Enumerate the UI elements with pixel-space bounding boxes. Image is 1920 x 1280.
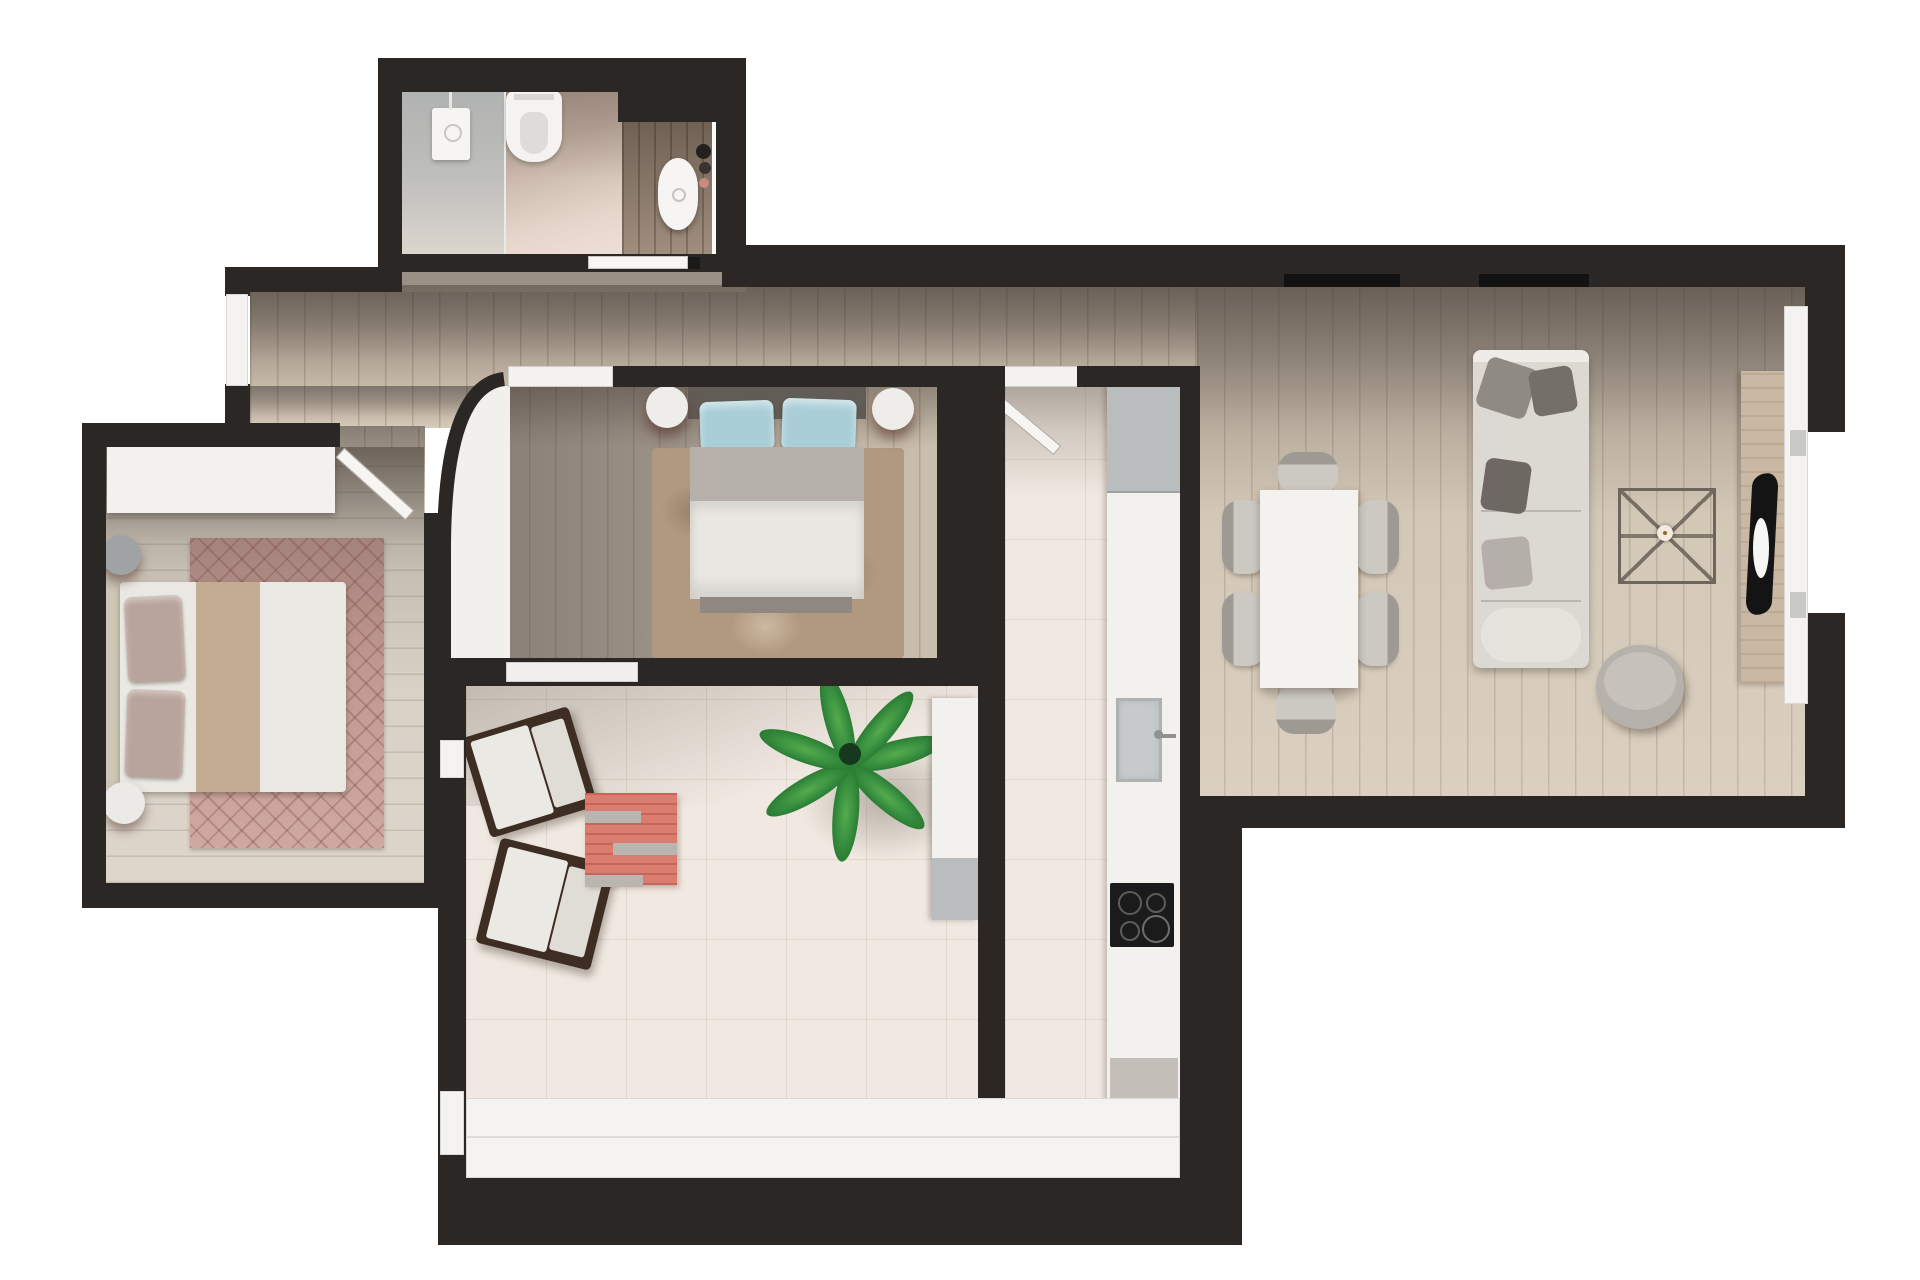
burner-icon [1146, 893, 1166, 913]
wall [937, 366, 1005, 662]
wall [978, 662, 1005, 1103]
window-sill-icon [1790, 592, 1806, 618]
sofa [1473, 350, 1589, 668]
window-lintel [1284, 274, 1400, 287]
wall [1805, 613, 1845, 828]
window-sill-icon [1790, 430, 1806, 456]
rug-stripe [585, 875, 643, 887]
curved-wall [438, 366, 510, 662]
bed1-runner-blanket [196, 582, 260, 792]
bedroom2-door-opening [508, 366, 613, 387]
nightstand [103, 782, 145, 824]
plant-pot-icon [839, 743, 861, 765]
burner-icon [1142, 915, 1170, 943]
wall [1805, 260, 1845, 432]
wall-living-bottom [1197, 796, 1845, 828]
fridge-top [1107, 387, 1180, 493]
bed2 [688, 383, 866, 613]
terrace-sideboard-shelf [932, 858, 978, 920]
rug-stripe [585, 811, 641, 823]
pouf-top [1604, 652, 1676, 710]
wall [82, 883, 440, 908]
bath-accessory-icon [699, 178, 709, 188]
sofa-pillow [1480, 457, 1533, 515]
bed2-foot-bench [700, 597, 852, 613]
bed1-pillow [124, 689, 185, 779]
window [226, 294, 248, 386]
window-lintel [1479, 274, 1589, 287]
sofa-seat-line [1481, 600, 1581, 602]
rug-stripe [613, 843, 677, 855]
potted-palm [765, 685, 935, 845]
bed2-blue-pillow [699, 400, 775, 453]
bed2-blanket [690, 447, 864, 507]
cooktop [1110, 883, 1174, 947]
dining-table [1260, 490, 1358, 688]
hallway-wood-under-bathroom [402, 270, 746, 292]
window-mullion-icon [466, 1136, 1180, 1138]
faucet-icon [1154, 730, 1163, 739]
nightstand [872, 388, 914, 430]
shower-drain-icon [444, 124, 462, 142]
bathroom-sliding-door [588, 256, 688, 269]
sofa-pillow [1481, 536, 1534, 591]
bed1-pillow [124, 595, 186, 684]
wall [225, 267, 250, 296]
panoramic-window [466, 1098, 1180, 1178]
bedroom2-terrace-door [506, 662, 638, 682]
burner-icon [1118, 891, 1142, 915]
burner-icon [1120, 921, 1140, 941]
wall-bottom [438, 1176, 1242, 1245]
window-wall-strip [1784, 306, 1808, 704]
coral-rug [585, 793, 677, 885]
nightstand [101, 535, 141, 575]
sink-drain-icon [672, 188, 686, 202]
candle-wick-icon [1663, 531, 1667, 535]
bath-accessory-icon [696, 144, 711, 159]
dining-chair [1355, 500, 1399, 574]
kitchen-sink [1116, 698, 1162, 782]
dining-chair [1355, 592, 1399, 666]
coffee-table [1618, 488, 1716, 584]
tv-highlight-icon [1753, 518, 1769, 578]
bath-accessory-icon [699, 162, 711, 174]
nightstand [646, 386, 688, 428]
bathroom-door-stop [688, 257, 700, 269]
floor-plan [0, 0, 1920, 1280]
window [440, 740, 464, 778]
bed2-blue-pillow [781, 398, 857, 453]
wall [716, 58, 746, 272]
wall [378, 58, 402, 272]
kitchen-lower-shelf [1110, 1058, 1178, 1100]
dining-chair [1278, 452, 1338, 494]
toilet-bowl-icon [520, 112, 548, 154]
toilet-cistern-icon [514, 94, 554, 100]
sofa-pillow [1527, 365, 1578, 418]
wardrobe [107, 447, 335, 513]
wall [225, 267, 402, 292]
window [440, 1091, 464, 1155]
bed2-duvet [690, 501, 864, 599]
sofa-end-cushion [1481, 608, 1581, 662]
wall [82, 429, 106, 908]
dining-chair [1276, 686, 1336, 734]
wall [82, 423, 340, 447]
